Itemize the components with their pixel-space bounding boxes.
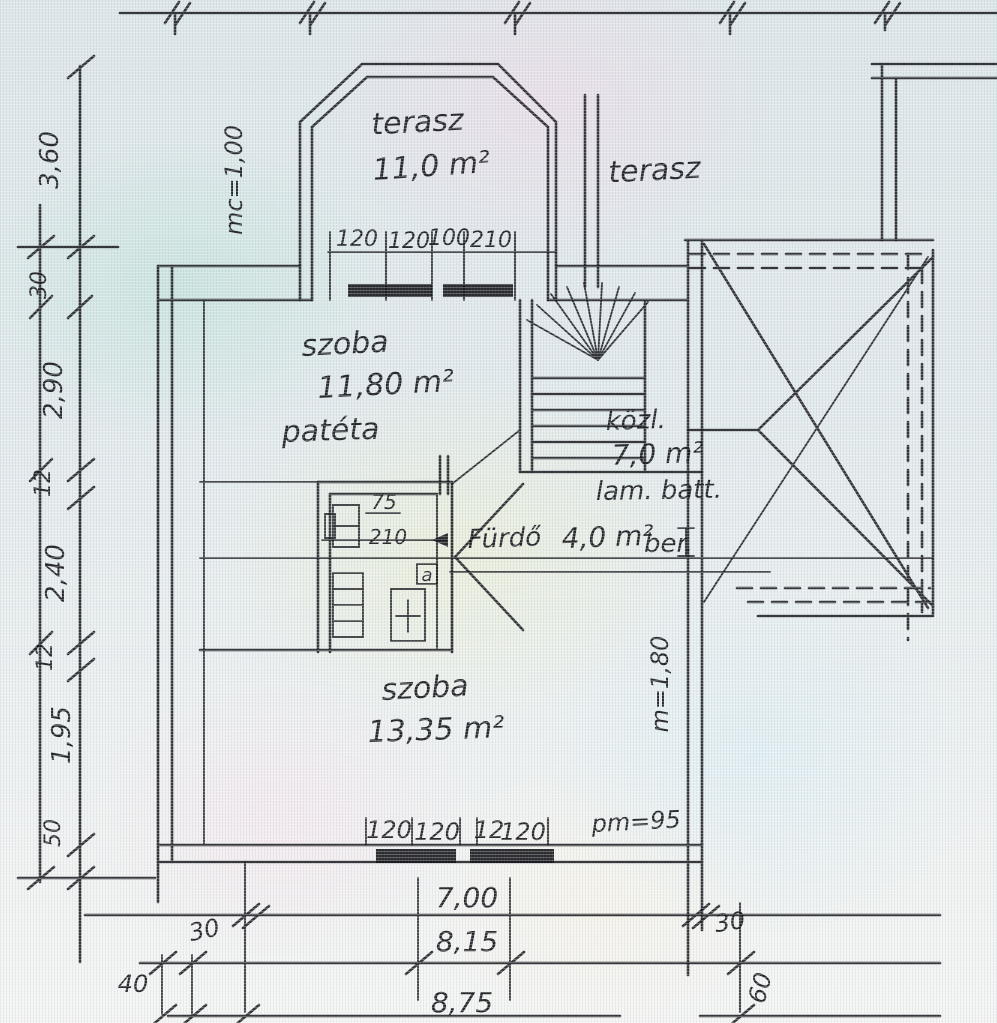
- corner-dim-40: 40: [118, 970, 149, 998]
- offset-left-30: 30: [186, 913, 222, 947]
- hall-label: közl.: [605, 405, 666, 437]
- laminate-note: lam. batt.: [596, 475, 723, 507]
- top-window-bar-2: [443, 284, 513, 297]
- dim-bottom-120c: 120: [500, 818, 546, 846]
- door-arrow-icon: [432, 533, 448, 547]
- top-window-bar-1: [348, 284, 432, 297]
- room1-area: 11,80 m²: [317, 364, 455, 406]
- total-dim-8-75: 8,75: [431, 986, 493, 1019]
- dim-left-50: 50: [41, 819, 66, 847]
- parapet-height-left: mc=1,00: [220, 125, 248, 235]
- bathroom-walls: [200, 482, 523, 652]
- parapet-height-right: m=1,80: [646, 636, 674, 733]
- bottom-window-bar-2: [470, 849, 554, 863]
- room1-label: szoba: [301, 324, 390, 364]
- terrace-bay-label: terasz: [370, 103, 465, 143]
- room1-note: patéta: [280, 412, 380, 450]
- room2-area: 13,35 m²: [367, 710, 505, 750]
- dim-left-3-60: 3,60: [35, 131, 65, 189]
- dim-left-1-95: 1,95: [47, 706, 77, 764]
- dim-left-12a: 12: [31, 469, 56, 497]
- room2-label: szoba: [381, 668, 470, 708]
- parapet-dim: pm=95: [590, 805, 682, 838]
- door-letter: a: [421, 565, 432, 586]
- dim-bottom-120b: 120: [414, 818, 460, 846]
- bath-dim-210: 210: [369, 525, 407, 549]
- dim-top-210: 210: [470, 228, 512, 253]
- dim-left-2-40: 2,40: [41, 544, 71, 602]
- main-walls: [158, 240, 933, 975]
- offset-right-30: 30: [713, 906, 747, 938]
- bathroom-area: 4,0 m²: [561, 519, 654, 555]
- top-dimension-line: [120, 2, 997, 34]
- hall-area: 7,0 m²: [611, 436, 704, 472]
- floorplan-sheet: 3,60 30 2,90 12 2,40 12 1,95 50 terasz 1…: [0, 0, 997, 1023]
- floorplan-drawing: 3,60 30 2,90 12 2,40 12 1,95 50 terasz 1…: [0, 0, 997, 1023]
- bottom-window-bar-1: [376, 849, 456, 863]
- bath-dim-75: 75: [371, 490, 396, 514]
- top-right-wall: [872, 64, 997, 240]
- total-dim-8-15: 8,15: [436, 925, 498, 958]
- corner-dim-60: 60: [743, 970, 778, 1007]
- terrace-right-label: terasz: [607, 151, 702, 191]
- dim-bottom-120a: 120: [366, 816, 412, 844]
- dim-left-2-90: 2,90: [39, 361, 69, 419]
- dim-left-12b: 12: [33, 643, 58, 671]
- dim-left-30: 30: [27, 271, 52, 299]
- roof-plan: [688, 244, 933, 640]
- dim-top-100: 100: [428, 226, 470, 251]
- dim-top-120b: 120: [388, 229, 430, 254]
- terrace-bay-area: 11,0 m²: [371, 145, 491, 188]
- dim-top-120a: 120: [336, 227, 378, 252]
- bathroom-label: Fürdő: [467, 522, 543, 555]
- total-dim-7-00: 7,00: [436, 881, 498, 914]
- left-dimension-chain: [18, 56, 155, 962]
